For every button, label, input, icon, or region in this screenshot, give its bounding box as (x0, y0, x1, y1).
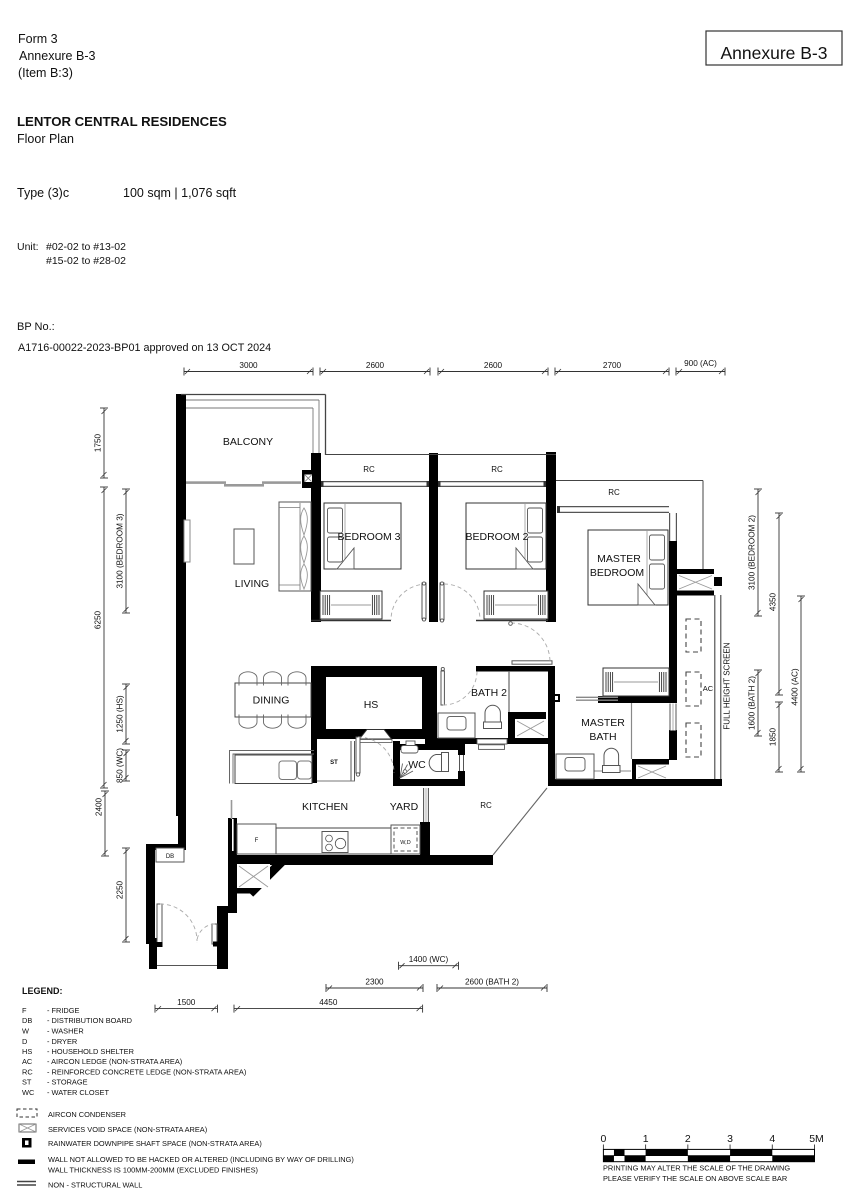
svg-text:ST: ST (330, 760, 338, 766)
svg-text:Form 3: Form 3 (18, 32, 58, 46)
svg-text:- STORAGE: - STORAGE (47, 1078, 88, 1087)
svg-text:5M: 5M (809, 1133, 824, 1145)
svg-text:HS: HS (364, 699, 379, 711)
svg-text:2700: 2700 (603, 361, 622, 370)
svg-text:100 sqm | 1,076 sqft: 100 sqm | 1,076 sqft (123, 186, 237, 200)
svg-text:- REINFORCED CONCRETE LEDGE (N: - REINFORCED CONCRETE LEDGE (NON-STRATA … (47, 1068, 246, 1077)
svg-text:HS: HS (22, 1047, 32, 1056)
svg-text:MASTER: MASTER (581, 717, 625, 729)
svg-text:AC: AC (22, 1057, 33, 1066)
svg-text:- AIRCON LEDGE (NON-STRATA ARE: - AIRCON LEDGE (NON-STRATA AREA) (47, 1057, 182, 1066)
svg-text:6250: 6250 (94, 610, 103, 629)
svg-text:- HOUSEHOLD SHELTER: - HOUSEHOLD SHELTER (47, 1047, 134, 1056)
svg-text:PLEASE VERIFY THE SCALE ON ABO: PLEASE VERIFY THE SCALE ON ABOVE SCALE B… (603, 1174, 787, 1183)
svg-text:3100 (BEDROOM 3): 3100 (BEDROOM 3) (116, 513, 125, 588)
svg-text:900 (AC): 900 (AC) (684, 359, 717, 368)
svg-text:4450: 4450 (319, 998, 338, 1007)
svg-text:F: F (255, 838, 259, 844)
svg-text:- WASHER: - WASHER (47, 1027, 84, 1036)
svg-text:2: 2 (685, 1133, 691, 1145)
svg-text:W: W (22, 1027, 29, 1036)
svg-text:Annexure B-3: Annexure B-3 (19, 49, 95, 63)
svg-text:1600 (BATH 2): 1600 (BATH 2) (748, 676, 757, 730)
svg-text:WC: WC (408, 759, 426, 771)
svg-text:BATH 2: BATH 2 (471, 687, 507, 699)
svg-text:1250 (HS): 1250 (HS) (116, 695, 125, 733)
svg-text:WC: WC (22, 1088, 35, 1097)
svg-text:(Item B:3): (Item B:3) (18, 66, 73, 80)
svg-text:- FRIDGE: - FRIDGE (47, 1006, 80, 1015)
svg-text:DINING: DINING (253, 695, 290, 707)
svg-text:1850: 1850 (769, 727, 778, 746)
svg-text:2250: 2250 (116, 880, 125, 899)
svg-text:RC: RC (608, 488, 620, 497)
svg-text:D: D (22, 1037, 27, 1046)
svg-text:2600: 2600 (484, 361, 503, 370)
svg-text:LEGEND:: LEGEND: (22, 986, 63, 996)
svg-text:DB: DB (166, 854, 174, 860)
svg-text:1400 (WC): 1400 (WC) (409, 955, 449, 964)
svg-text:850 (WC): 850 (WC) (116, 748, 125, 783)
svg-text:2400: 2400 (95, 797, 104, 816)
svg-text:4350: 4350 (769, 592, 778, 611)
svg-text:BEDROOM: BEDROOM (590, 567, 644, 579)
svg-text:LENTOR CENTRAL RESIDENCES: LENTOR CENTRAL RESIDENCES (17, 114, 227, 129)
svg-text:Unit:: Unit: (17, 241, 39, 253)
svg-text:WALL NOT ALLOWED TO BE HACKED: WALL NOT ALLOWED TO BE HACKED OR ALTERED… (48, 1155, 354, 1164)
svg-text:BP No.:: BP No.: (17, 321, 55, 333)
svg-text:Type (3)c: Type (3)c (17, 186, 69, 200)
svg-text:1: 1 (643, 1133, 649, 1145)
svg-text:3100 (BEDROOM 2): 3100 (BEDROOM 2) (748, 515, 757, 590)
svg-text:3: 3 (727, 1133, 733, 1145)
svg-text:KITCHEN: KITCHEN (302, 801, 348, 813)
svg-text:1500: 1500 (177, 998, 196, 1007)
svg-text:2300: 2300 (365, 978, 384, 987)
svg-text:YARD: YARD (390, 801, 419, 813)
svg-text:LIVING: LIVING (235, 578, 269, 590)
svg-text:RAINWATER DOWNPIPE SHAFT SPACE: RAINWATER DOWNPIPE SHAFT SPACE (NON-STRA… (48, 1139, 262, 1148)
svg-text:Floor Plan: Floor Plan (17, 132, 74, 146)
svg-text:- WATER CLOSET: - WATER CLOSET (47, 1088, 109, 1097)
svg-text:BALCONY: BALCONY (223, 436, 273, 448)
svg-text:3000: 3000 (239, 361, 258, 370)
svg-text:2600: 2600 (366, 361, 385, 370)
svg-text:A1716-00022-2023-BP01 approved: A1716-00022-2023-BP01 approved on 13 OCT… (18, 342, 271, 354)
svg-text:#15-02 to #28-02: #15-02 to #28-02 (46, 255, 126, 267)
svg-text:4400 (AC): 4400 (AC) (791, 668, 800, 706)
svg-text:#02-02 to #13-02: #02-02 to #13-02 (46, 241, 126, 253)
svg-text:0: 0 (600, 1133, 606, 1145)
svg-text:- DRYER: - DRYER (47, 1037, 77, 1046)
svg-text:PRINTING MAY ALTER THE SCALE O: PRINTING MAY ALTER THE SCALE OF THE DRAW… (603, 1163, 790, 1172)
svg-text:2600 (BATH 2): 2600 (BATH 2) (465, 978, 519, 987)
svg-text:RC: RC (480, 801, 492, 810)
svg-text:RC: RC (491, 465, 503, 474)
svg-text:AIRCON CONDENSER: AIRCON CONDENSER (48, 1110, 126, 1119)
svg-text:W,D: W,D (400, 840, 410, 846)
svg-text:BEDROOM 3: BEDROOM 3 (337, 531, 400, 543)
svg-text:FULL HEIGHT SCREEN: FULL HEIGHT SCREEN (723, 642, 732, 729)
svg-text:RC: RC (363, 465, 375, 474)
svg-text:BEDROOM 2: BEDROOM 2 (465, 531, 528, 543)
svg-text:AC: AC (703, 684, 714, 693)
svg-text:1750: 1750 (94, 433, 103, 452)
svg-text:Annexure B-3: Annexure B-3 (720, 43, 827, 63)
svg-text:DB: DB (22, 1016, 32, 1025)
svg-text:- DISTRIBUTION BOARD: - DISTRIBUTION BOARD (47, 1016, 132, 1025)
svg-text:RC: RC (22, 1068, 33, 1077)
svg-text:ST: ST (22, 1078, 32, 1087)
svg-text:SERVICES VOID SPACE (NON-STRAT: SERVICES VOID SPACE (NON-STRATA AREA) (48, 1125, 207, 1134)
svg-text:F: F (22, 1006, 27, 1015)
svg-text:4: 4 (769, 1133, 775, 1145)
svg-text:BATH: BATH (589, 731, 616, 743)
svg-text:MASTER: MASTER (597, 553, 641, 565)
svg-text:WALL THICKNESS IS 100MM-200MM: WALL THICKNESS IS 100MM-200MM (EXCLUDED … (48, 1166, 258, 1175)
svg-text:NON - STRUCTURAL WALL: NON - STRUCTURAL WALL (48, 1181, 142, 1190)
